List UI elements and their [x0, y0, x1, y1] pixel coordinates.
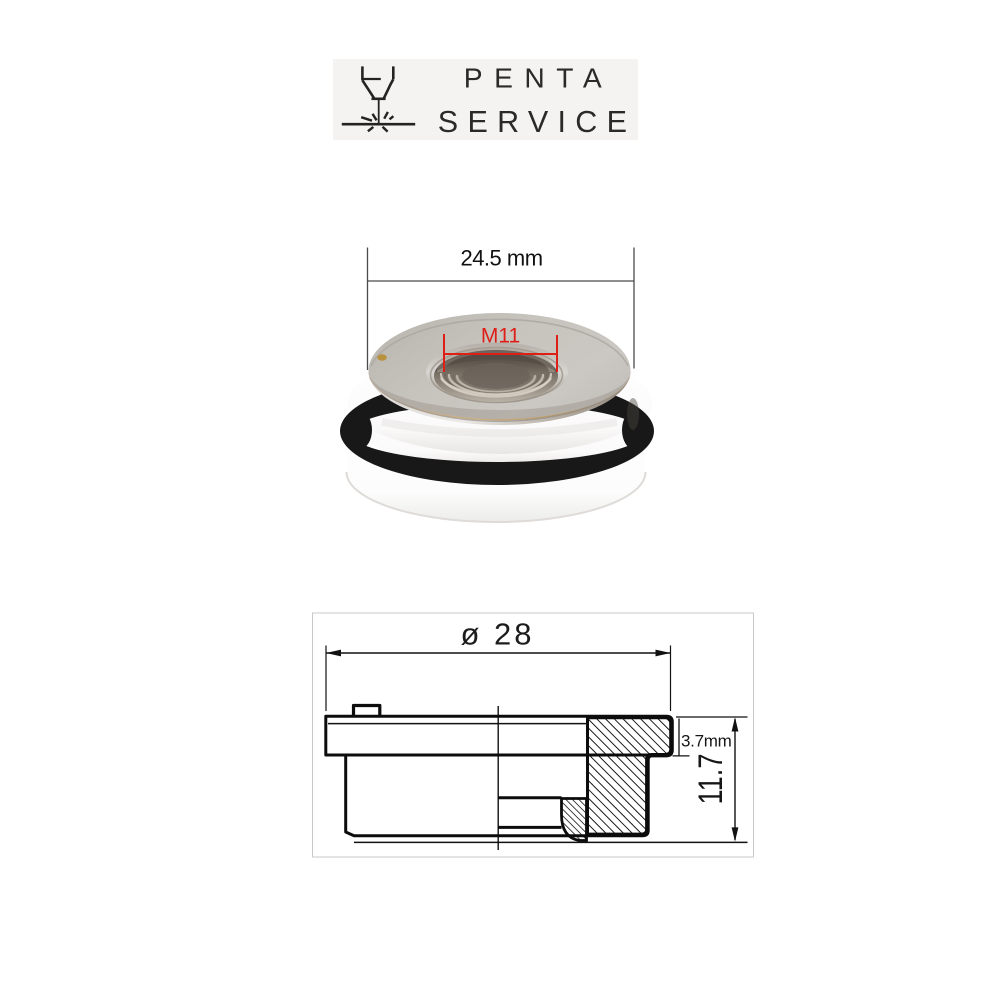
svg-text:M11: M11: [481, 325, 520, 348]
svg-text:24.5 mm: 24.5 mm: [460, 246, 542, 271]
svg-text:11.7: 11.7: [691, 754, 730, 805]
svg-text:ø 28: ø 28: [460, 617, 534, 652]
svg-text:SERVICE: SERVICE: [438, 105, 636, 139]
svg-text:3.7mm: 3.7mm: [681, 732, 732, 751]
svg-text:PENTA: PENTA: [464, 61, 613, 93]
